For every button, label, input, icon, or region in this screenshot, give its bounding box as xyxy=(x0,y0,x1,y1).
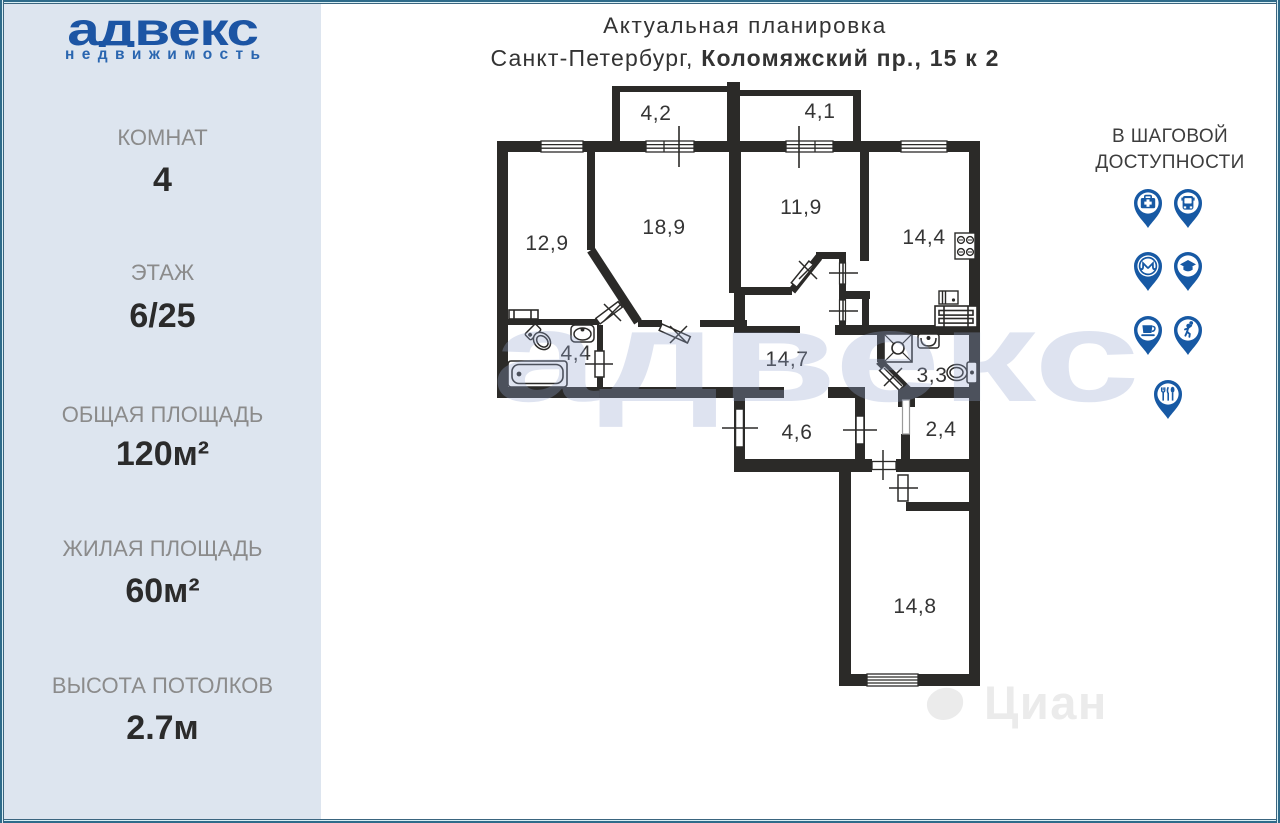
svg-text:адвекс: адвекс xyxy=(492,283,1140,429)
svg-text:14,4: 14,4 xyxy=(902,226,945,249)
svg-text:11,9: 11,9 xyxy=(780,196,822,219)
svg-text:Циан: Циан xyxy=(984,676,1108,729)
svg-text:12,9: 12,9 xyxy=(525,232,568,255)
svg-text:14,8: 14,8 xyxy=(893,595,936,618)
svg-text:4,2: 4,2 xyxy=(641,102,672,125)
svg-text:4,1: 4,1 xyxy=(805,100,836,123)
svg-text:18,9: 18,9 xyxy=(642,216,685,239)
